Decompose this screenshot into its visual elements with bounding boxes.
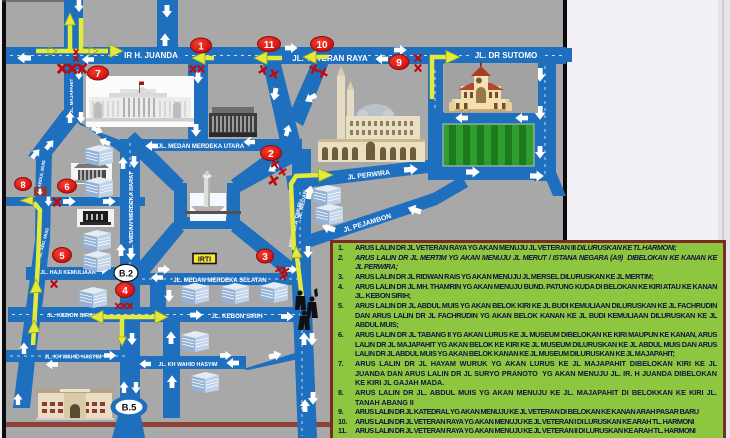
svg-text:JL. MEDAN MERDEKA SELATAN: JL. MEDAN MERDEKA SELATAN [173,278,266,284]
svg-text:11: 11 [264,40,275,51]
svg-text:5: 5 [59,251,65,262]
svg-text:6: 6 [64,182,69,193]
svg-text:9: 9 [396,58,402,69]
svg-text:IR H. JUANDA: IR H. JUANDA [124,51,178,60]
svg-text:7: 7 [95,69,101,80]
svg-text:3: 3 [262,252,268,263]
svg-text:8: 8 [20,180,25,190]
svg-text:2: 2 [268,149,274,160]
svg-text:JL. HAJI KEMULIAAN: JL. HAJI KEMULIAAN [40,270,96,276]
svg-text:4: 4 [122,286,128,297]
svg-text:JL. MEDAN MERDEKA UTARA: JL. MEDAN MERDEKA UTARA [158,144,245,150]
svg-text:10: 10 [316,40,328,51]
svg-text:JL. MEDAN MERDEKA BARAT: JL. MEDAN MERDEKA BARAT [129,171,135,252]
svg-text:B.2: B.2 [119,269,133,279]
svg-text:JL. KH WAHID HASYIM: JL. KH WAHID HASYIM [159,362,219,368]
svg-text:JL. MAJAPAHIT: JL. MAJAPAHIT [69,79,74,114]
svg-text:JL. KH WAHID HASYIM: JL. KH WAHID HASYIM [45,355,102,361]
svg-text:IRTI: IRTI [198,257,211,264]
svg-text:1: 1 [198,42,204,53]
svg-text:JL. VETERAN RAYA: JL. VETERAN RAYA [292,54,368,63]
svg-text:JL. KEBON SIRIH: JL. KEBON SIRIH [211,313,263,320]
svg-text:B.5: B.5 [122,403,138,414]
svg-text:JL. DR SUTOMO: JL. DR SUTOMO [475,51,538,60]
svg-text:JL. KEBON SIRIH: JL. KEBON SIRIH [47,313,95,319]
